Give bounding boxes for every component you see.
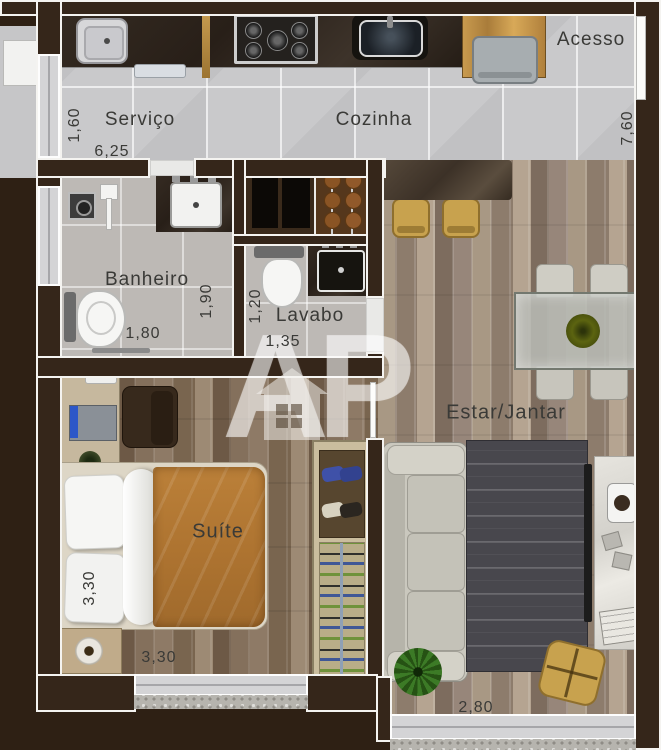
drain-circle xyxy=(76,200,92,216)
dim-lavabo-width: 1,35 xyxy=(265,333,300,351)
suite-window xyxy=(134,674,308,696)
suite-living-wall xyxy=(366,438,384,712)
suite-top-wall xyxy=(36,356,384,378)
sofa-cushion xyxy=(407,475,465,533)
toilet-bowl xyxy=(261,258,303,308)
entry-door-leaf xyxy=(636,16,646,100)
banheiro-window xyxy=(38,186,60,286)
lamp-icon xyxy=(75,637,103,665)
stool-back xyxy=(397,226,425,233)
toilet-seat xyxy=(86,301,116,335)
clothes-rod xyxy=(340,543,343,679)
sofa-armrest xyxy=(387,445,465,475)
cabinet-door xyxy=(252,172,278,228)
room-label-lavabo: Lavabo xyxy=(276,305,344,327)
bathroom-toilet xyxy=(64,288,126,346)
dim-suite-width: 3,30 xyxy=(81,570,99,605)
laptop xyxy=(69,405,117,441)
burner-icon xyxy=(291,42,308,59)
service-banheiro-wall xyxy=(36,158,150,178)
shoe-pair xyxy=(339,501,363,519)
service-window xyxy=(38,54,60,158)
bar-stool xyxy=(392,198,430,238)
lavabo-top-wall xyxy=(232,234,372,246)
room-label-estar-jantar: Estar/Jantar xyxy=(446,402,566,425)
toilet-tank xyxy=(254,246,304,258)
burner-icon xyxy=(245,22,262,39)
floorplan: Serviço Cozinha Acesso Banheiro Lavabo S… xyxy=(0,0,661,750)
burner-icon xyxy=(291,22,308,39)
tv xyxy=(584,464,592,622)
dim-estar-window: 2,80 xyxy=(458,699,493,717)
ac-unit xyxy=(3,40,39,86)
laundry-drain xyxy=(104,38,110,44)
room-label-acesso: Acesso xyxy=(557,29,625,51)
dim-banheiro-depth: 1,90 xyxy=(198,283,216,318)
bathroom-vanity xyxy=(156,174,238,232)
dim-servico-width: 1,60 xyxy=(66,107,84,142)
pillow xyxy=(64,474,127,550)
hanging-item xyxy=(345,192,362,209)
hanging-item xyxy=(345,212,362,229)
sofa xyxy=(382,442,468,682)
lavabo-door-opening xyxy=(366,298,384,352)
nightstand xyxy=(58,628,122,674)
living-window-sill xyxy=(390,739,636,750)
shower-wand xyxy=(98,184,118,228)
room-label-suite: Suíte xyxy=(192,521,244,544)
kitchen-mid-wall xyxy=(194,158,386,178)
suite-bottom-wall-left xyxy=(36,674,136,712)
stove xyxy=(234,14,318,64)
suite-window-sill xyxy=(134,695,308,709)
wardrobe xyxy=(312,440,370,686)
dim-right-depth: 7,60 xyxy=(619,110,637,145)
towel-bar xyxy=(92,348,150,353)
room-label-servico: Serviço xyxy=(105,109,175,131)
bar-counter xyxy=(384,160,512,200)
sofa-cushion xyxy=(407,591,465,651)
banheiro-lavabo-wall xyxy=(232,158,246,360)
toilet-tank xyxy=(64,292,76,342)
suite-bottom-wall-right xyxy=(306,674,378,712)
dining-chair xyxy=(590,366,628,400)
entry-chair xyxy=(472,36,538,84)
room-label-cozinha: Cozinha xyxy=(336,109,413,131)
stool-back xyxy=(447,226,475,233)
drying-rack xyxy=(134,64,186,78)
wand-stem xyxy=(106,198,112,230)
lavabo-sink-counter xyxy=(308,242,370,296)
laundry-sink xyxy=(76,18,128,64)
banheiro-door-opening xyxy=(150,160,194,176)
burner-icon xyxy=(245,42,262,59)
duvet xyxy=(153,467,265,627)
faucet-icon xyxy=(387,16,393,28)
sink-drain xyxy=(193,202,199,208)
lavabo-basin xyxy=(317,250,365,292)
shower-drain xyxy=(68,192,96,220)
kitchen-sink xyxy=(352,14,428,60)
dim-banheiro-width: 1,80 xyxy=(125,325,160,343)
cabinet-door xyxy=(282,172,310,228)
burner-icon xyxy=(267,30,288,51)
laptop-spine xyxy=(70,406,78,438)
room-label-banheiro: Banheiro xyxy=(105,269,189,291)
sink-drain xyxy=(338,267,344,273)
suite-door-leaf xyxy=(370,382,376,438)
bar-stool xyxy=(442,198,480,238)
hanging-item xyxy=(324,192,341,209)
living-window xyxy=(390,714,636,740)
remote-icon xyxy=(612,551,633,570)
top-wall xyxy=(0,0,661,16)
lavabo-living-wall-upper xyxy=(366,158,384,298)
wardrobe-clothes xyxy=(319,542,365,682)
dining-chair xyxy=(536,366,574,400)
chair-seat xyxy=(151,391,173,445)
toilet-bowl xyxy=(76,290,126,348)
speaker-cone xyxy=(614,495,630,511)
dim-servico-length: 6,25 xyxy=(94,143,129,161)
hanging-item xyxy=(324,212,341,229)
dim-suite-length: 3,30 xyxy=(141,649,176,667)
wardrobe-shoes xyxy=(319,450,365,538)
shoe-pair xyxy=(339,465,363,483)
sofa-cushion xyxy=(407,533,465,591)
plant xyxy=(394,648,442,696)
rug xyxy=(466,440,588,672)
centerpiece xyxy=(566,314,600,348)
chair-edge xyxy=(478,72,532,78)
sofa-back xyxy=(385,449,405,675)
vanity-sink xyxy=(170,182,222,228)
speaker-icon xyxy=(607,483,637,523)
desk-chair xyxy=(122,386,178,448)
wood-divider xyxy=(202,14,210,78)
remote-icon xyxy=(601,531,623,551)
faucet-handle xyxy=(172,176,180,182)
dim-lavabo-depth: 1,20 xyxy=(247,288,265,323)
right-wall xyxy=(634,0,661,750)
